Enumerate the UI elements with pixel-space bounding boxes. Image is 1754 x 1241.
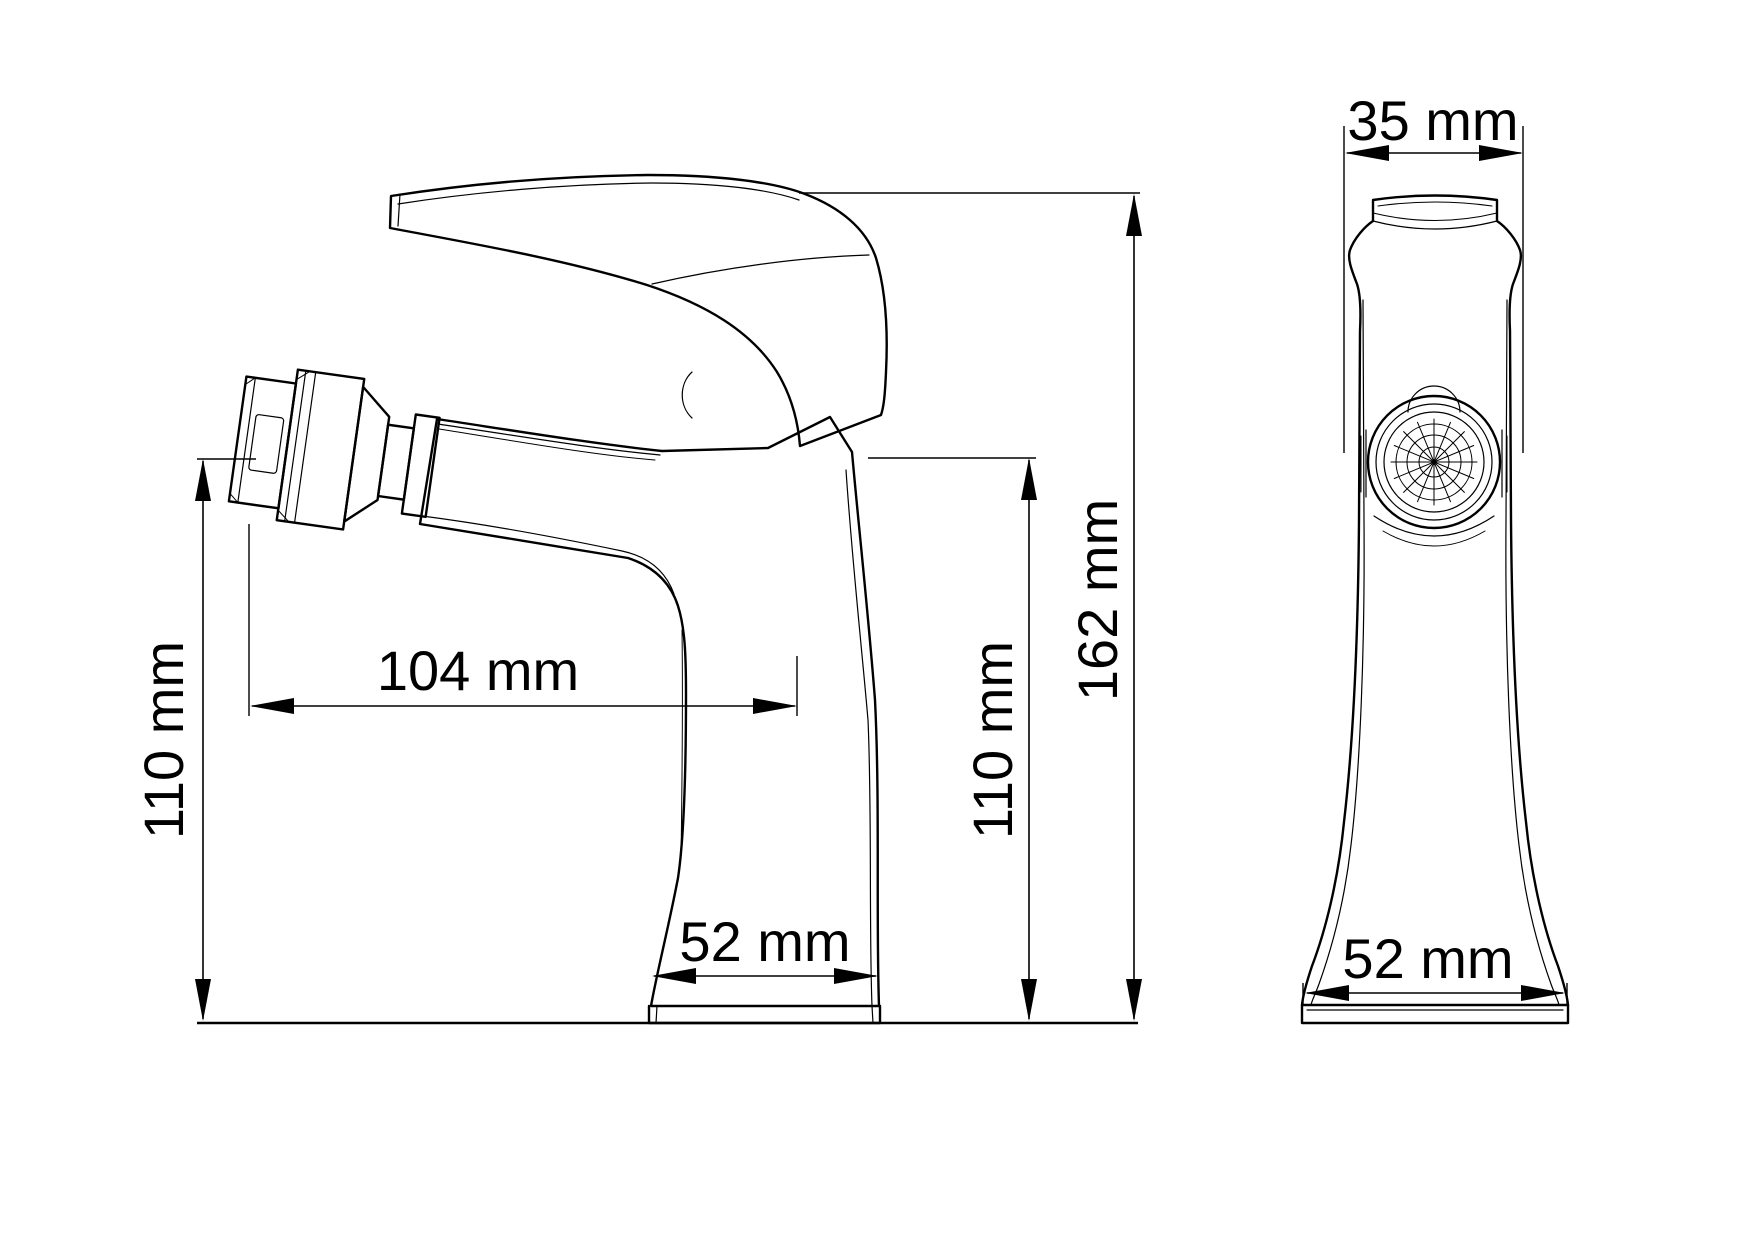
dim-side-spout-height-label: 110 mm: [132, 641, 195, 839]
dim-side-total-height-label: 162 mm: [1066, 499, 1129, 701]
dim-side-total-height: 162 mm: [799, 193, 1142, 1021]
dim-side-base-width: 52 mm: [652, 910, 878, 984]
side-base-plate: [649, 1006, 880, 1023]
dim-side-reach-label: 104 mm: [377, 639, 579, 702]
dim-side-spout-height: 110 mm: [132, 459, 256, 1021]
side-aerator-assembly: [227, 363, 443, 541]
front-aerator: [1361, 386, 1507, 546]
dimensions: 110 mm 104 mm 110 mm: [132, 89, 1567, 1023]
technical-drawing: 110 mm 104 mm 110 mm: [0, 0, 1754, 1241]
dim-side-reach: 104 mm: [249, 524, 797, 716]
front-base-plate: [1302, 1005, 1568, 1023]
side-view: [227, 175, 886, 1023]
front-view: [1302, 196, 1568, 1024]
dim-front-top-width: 35 mm: [1344, 89, 1523, 453]
dim-side-body-height-label: 110 mm: [961, 641, 1024, 839]
dim-side-body-height: 110 mm: [868, 458, 1037, 1021]
dim-front-base-width: 52 mm: [1303, 927, 1567, 1005]
drawing-sheet: 110 mm 104 mm 110 mm: [0, 0, 1754, 1241]
front-body-outline: [1302, 196, 1568, 1006]
side-handle: [390, 175, 887, 446]
dim-side-base-width-label: 52 mm: [679, 910, 850, 973]
dim-front-top-width-label: 35 mm: [1347, 89, 1518, 152]
aerator-mesh: [1391, 419, 1477, 505]
dim-front-base-width-label: 52 mm: [1342, 927, 1513, 990]
